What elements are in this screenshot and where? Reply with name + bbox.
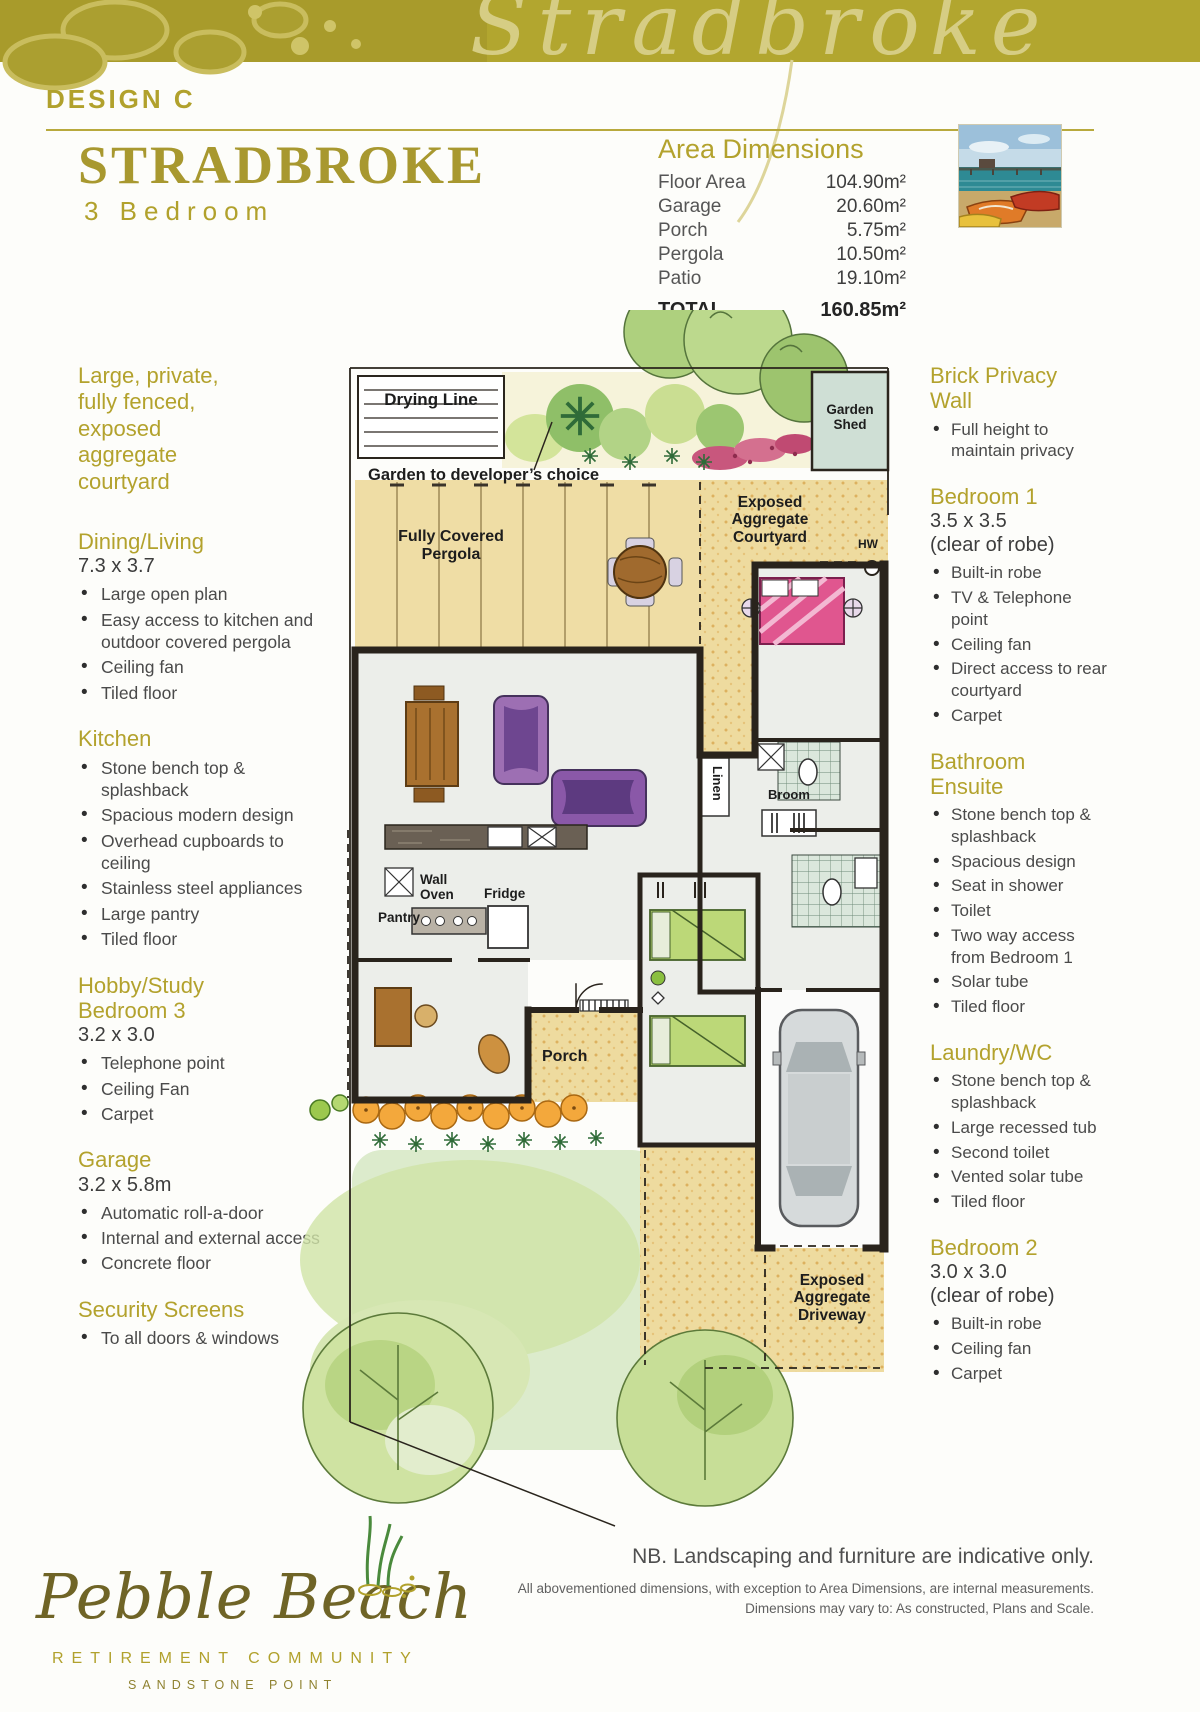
feature-bullet: Seat in shower: [930, 875, 1108, 897]
label-porch: Porch: [542, 1048, 587, 1066]
feature-bullet: Large recessed tub: [930, 1117, 1108, 1139]
section-note: (clear of robe): [930, 1284, 1108, 1308]
area-row-value: 5.75m²: [847, 219, 906, 243]
area-row: Porch 5.75m²: [658, 219, 906, 243]
section-bathroom-ensuite: Bathroom Ensuite Stone bench top & splas…: [930, 749, 1108, 1018]
label-wall-oven: Wall Oven: [420, 872, 474, 902]
nb-note: NB. Landscaping and furniture are indica…: [518, 1545, 1094, 1569]
label-linen: Linen: [709, 766, 724, 801]
area-row: Patio 19.10m²: [658, 267, 906, 291]
car: [773, 1010, 865, 1226]
design-label: DESIGN C: [46, 84, 196, 115]
label-broom: Broom: [764, 788, 814, 803]
section-heading: Bedroom 1: [930, 484, 1102, 509]
beach-photo: [958, 124, 1062, 228]
section-heading: Laundry/WC: [930, 1040, 1102, 1065]
section-dimension: 3.5 x 3.5: [930, 509, 1108, 533]
disclaimer-1: All abovementioned dimensions, with exce…: [518, 1581, 1094, 1596]
feature-bullet: Toilet: [930, 900, 1108, 922]
section-brick-privacy-wall: Brick Privacy Wall Full height to mainta…: [930, 363, 1108, 462]
section-heading: Garage: [78, 1147, 263, 1172]
bed-1-pink: [742, 578, 862, 644]
feature-bullet: Direct access to rear courtyard: [930, 658, 1108, 702]
area-row: Floor Area 104.90m²: [658, 171, 906, 195]
broom-closet: [762, 810, 816, 836]
area-row: Pergola 10.50m²: [658, 243, 906, 267]
area-row-value: 104.90m²: [826, 171, 906, 195]
logo-grass-icon: [350, 1508, 420, 1598]
drying-line-structure: [358, 376, 504, 458]
label-garden-shed: Garden Shed: [816, 402, 884, 432]
section-heading: Bedroom 2: [930, 1235, 1102, 1260]
disclaimer-2: Dimensions may vary to: As constructed, …: [518, 1601, 1094, 1616]
feature-bullet: Vented solar tube: [930, 1166, 1108, 1188]
feature-bullet: Tiled floor: [930, 1191, 1108, 1213]
feature-bullet: Carpet: [930, 1363, 1108, 1385]
area-row-value: 20.60m²: [836, 195, 906, 219]
feature-bullet: Solar tube: [930, 971, 1108, 993]
section-heading: Brick Privacy Wall: [930, 363, 1102, 414]
feature-bullet: Carpet: [930, 705, 1108, 727]
footer-notes: NB. Landscaping and furniture are indica…: [518, 1545, 1094, 1616]
beach-photo-illustration: [959, 125, 1061, 227]
area-dimensions-title: Area Dimensions: [658, 134, 906, 165]
feature-bullet: Stone bench top & splashback: [930, 804, 1108, 848]
pebble-motif: [5, 2, 306, 88]
label-drying-line: Drying Line: [368, 390, 494, 409]
area-row-label: Patio: [658, 267, 701, 291]
divider-rule: [46, 129, 1094, 131]
bed-green-2: [650, 1016, 745, 1066]
section-heading: Security Screens: [78, 1297, 263, 1322]
section-heading: Bathroom Ensuite: [930, 749, 1102, 800]
area-row-label: Pergola: [658, 243, 724, 267]
label-hw: HW: [858, 538, 878, 551]
area-row-label: Porch: [658, 219, 708, 243]
feature-bullet: Spacious design: [930, 851, 1108, 873]
area-row-label: Garage: [658, 195, 721, 219]
label-driveway: Exposed Aggregate Driveway: [780, 1272, 884, 1324]
logo-location-line: SANDSTONE POINT: [128, 1678, 337, 1692]
label-fridge: Fridge: [484, 886, 544, 901]
dining-table: [406, 686, 458, 802]
section-heading: Hobby/Study Bedroom 3: [78, 973, 263, 1024]
section-heading: Dining/Living: [78, 529, 263, 554]
feature-bullet: Stone bench top & splashback: [930, 1070, 1108, 1114]
area-row-value: 19.10m²: [836, 267, 906, 291]
area-row: Garage 20.60m²: [658, 195, 906, 219]
feature-bullet: Second toilet: [930, 1142, 1108, 1164]
area-dimensions-panel: Area Dimensions Floor Area 104.90m² Gara…: [658, 134, 906, 322]
logo-community-line: RETIREMENT COMMUNITY: [52, 1650, 419, 1668]
right-feature-column: Brick Privacy Wall Full height to mainta…: [930, 363, 1108, 1406]
page-subtitle: 3 Bedroom: [84, 196, 274, 227]
feature-bullet: Built-in robe: [930, 562, 1108, 584]
label-courtyard: Exposed Aggregate Courtyard: [708, 494, 832, 546]
feature-bullet: Ceiling fan: [930, 634, 1108, 656]
page-title: STRADBROKE: [78, 134, 486, 196]
label-pantry: Pantry: [378, 910, 434, 925]
label-garden-note: Garden to developer’s choice: [368, 466, 668, 484]
flower-hedge: [310, 1095, 604, 1152]
feature-bullet: Ceiling fan: [930, 1338, 1108, 1360]
feature-bullet: TV & Telephone point: [930, 587, 1108, 631]
section-note: (clear of robe): [930, 533, 1108, 557]
section-bedroom-1: Bedroom 1 3.5 x 3.5 (clear of robe) Buil…: [930, 484, 1108, 727]
feature-bullet: Tiled floor: [930, 996, 1108, 1018]
section-laundry-wc: Laundry/WC Stone bench top & splashback …: [930, 1040, 1108, 1213]
banner-script-title: Stradbroke: [470, 0, 1050, 74]
label-pergola: Fully Covered Pergola: [392, 528, 510, 564]
area-row-label: Floor Area: [658, 171, 746, 195]
section-bedroom-2: Bedroom 2 3.0 x 3.0 (clear of robe) Buil…: [930, 1235, 1108, 1385]
section-heading: Kitchen: [78, 726, 263, 751]
area-row-value: 10.50m²: [836, 243, 906, 267]
section-dimension: 3.0 x 3.0: [930, 1260, 1108, 1284]
feature-bullet: Full height to maintain privacy: [930, 419, 1108, 463]
floor-plan: Drying Line Garden to developer’s choice…: [280, 310, 920, 1560]
feature-bullet: Two way access from Bedroom 1: [930, 925, 1108, 969]
courtyard-intro-text: Large, private, fully fenced, exposed ag…: [78, 363, 236, 495]
feature-bullet: Built-in robe: [930, 1313, 1108, 1335]
